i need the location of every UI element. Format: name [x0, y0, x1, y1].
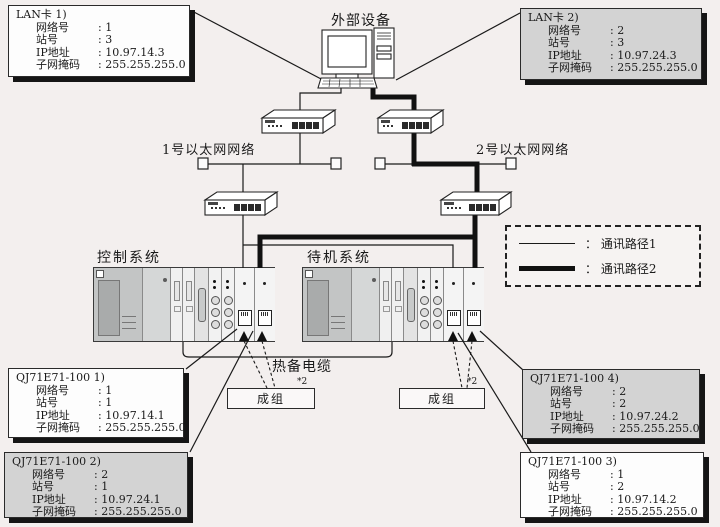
port1-box1-lead: [186, 329, 237, 369]
up-arrow-icon: [239, 331, 249, 341]
legend-item-path1: ： 通讯路径1: [519, 235, 699, 252]
param-value: : 10.97.24.1: [94, 493, 161, 506]
param-value: : 255.255.255.0: [610, 61, 698, 74]
up-arrow-icon: [257, 331, 267, 341]
hub-icon: [262, 110, 335, 133]
lan2-lead-line: [396, 13, 520, 80]
info-box-e71-2: QJ71E71-100 2) 网络号: 2 站号: 1 IP地址: 10.97.…: [4, 452, 188, 518]
param-value: : 2: [610, 24, 624, 37]
param-value: : 255.255.255.0: [98, 421, 186, 434]
param-value: : 10.97.14.2: [610, 493, 677, 506]
param-value: : 10.97.24.2: [612, 410, 679, 423]
lan1-lead-line: [192, 11, 323, 80]
param-value: : 3: [98, 33, 112, 46]
info-box-e71-3: QJ71E71-100 3) 网络号: 1 站号: 2 IP地址: 10.97.…: [520, 452, 704, 518]
param-label: 子网掩码: [548, 506, 610, 519]
param-value: : 1: [610, 468, 624, 481]
group-box-right-label: 成组: [428, 390, 456, 407]
bus-terminator-icon: [198, 158, 208, 169]
network-diagram: 外部设备 1号以太网网络 2号以太网网络 控制系统 待机系统 热备电缆 *2 *…: [0, 0, 720, 527]
up-arrow-icon: [448, 331, 458, 341]
hot-standby-cable-label: 热备电缆: [272, 356, 332, 376]
param-label: 子网掩码: [32, 506, 94, 519]
up-arrow-icon: [467, 331, 477, 341]
info-box-title: QJ71E71-100 1): [16, 372, 177, 385]
param-value: : 10.97.14.1: [98, 409, 165, 422]
legend-label: ： 通讯路径2: [585, 260, 656, 277]
hub-icon: [441, 192, 511, 215]
param-value: : 255.255.255.0: [94, 505, 182, 518]
info-box-lan1: LAN卡 1) 网络号: 1 站号: 3 IP地址: 10.97.14.3 子网…: [8, 5, 190, 77]
control-system-label: 控制系统: [97, 247, 161, 267]
param-label: 子网掩码: [548, 62, 610, 75]
network2-thick-segment: [412, 164, 477, 192]
hub-icon: [205, 192, 277, 215]
param-value: : 10.97.14.3: [98, 46, 165, 59]
standby-system-label: 待机系统: [307, 247, 371, 267]
param-label: 子网掩码: [36, 422, 98, 435]
info-box-lan2: LAN卡 2) 网络号: 2 站号: 3 IP地址: 10.97.24.3 子网…: [520, 8, 702, 80]
param-label: 站号: [36, 34, 98, 47]
param-value: : 1: [98, 384, 112, 397]
param-value: : 255.255.255.0: [98, 58, 186, 71]
param-value: : 1: [98, 21, 112, 34]
port4-box4-lead: [480, 331, 523, 370]
param-value: : 2: [612, 397, 626, 410]
group-box-left-label: 成组: [257, 390, 285, 407]
group-box-right: 成组: [399, 388, 485, 409]
bus-terminator-icon: [331, 158, 341, 169]
param-label: 子网掩码: [550, 423, 612, 436]
param-value: : 1: [94, 480, 108, 493]
group-dashed-line: [453, 341, 462, 388]
network2-label: 2号以太网网络: [476, 139, 569, 158]
info-box-e71-1: QJ71E71-100 1) 网络号: 1 站号: 1 IP地址: 10.97.…: [8, 368, 184, 438]
param-value: : 255.255.255.0: [612, 422, 700, 435]
legend-item-path2: ： 通讯路径2: [519, 260, 699, 277]
bus-terminator-icon: [506, 158, 516, 169]
param-value: : 1: [98, 396, 112, 409]
thick-line-swatch: [519, 266, 575, 271]
legend: ： 通讯路径1 ： 通讯路径2: [505, 225, 701, 287]
network1-label: 1号以太网网络: [162, 139, 255, 158]
group-box-left: 成组: [227, 388, 315, 409]
param-value: : 2: [612, 385, 626, 398]
external-device-label: 外部设备: [331, 10, 391, 30]
param-label: 站号: [548, 37, 610, 50]
computer-icon: [318, 28, 394, 88]
param-value: : 255.255.255.0: [610, 505, 698, 518]
info-box-e71-4: QJ71E71-100 4) 网络号: 2 站号: 2 IP地址: 10.97.…: [522, 369, 700, 439]
thin-line-swatch: [519, 243, 575, 244]
bus-terminator-icon: [375, 158, 385, 169]
footnote-right: *2: [467, 377, 477, 387]
hub-icon: [378, 110, 443, 133]
param-label: 站号: [550, 398, 612, 411]
footnote-left: *2: [297, 377, 307, 387]
param-value: : 3: [610, 36, 624, 49]
param-label: 站号: [36, 397, 98, 410]
param-label: 站号: [32, 481, 94, 494]
param-value: : 10.97.24.3: [610, 49, 677, 62]
pc-thin-cable: [300, 88, 341, 110]
param-label: 子网掩码: [36, 59, 98, 72]
param-label: 站号: [548, 481, 610, 494]
legend-label: ： 通讯路径1: [585, 235, 656, 252]
param-value: : 2: [610, 480, 624, 493]
hot-standby-cable-line: [183, 342, 392, 357]
pc-thick-cable: [373, 88, 414, 110]
param-value: : 2: [94, 468, 108, 481]
